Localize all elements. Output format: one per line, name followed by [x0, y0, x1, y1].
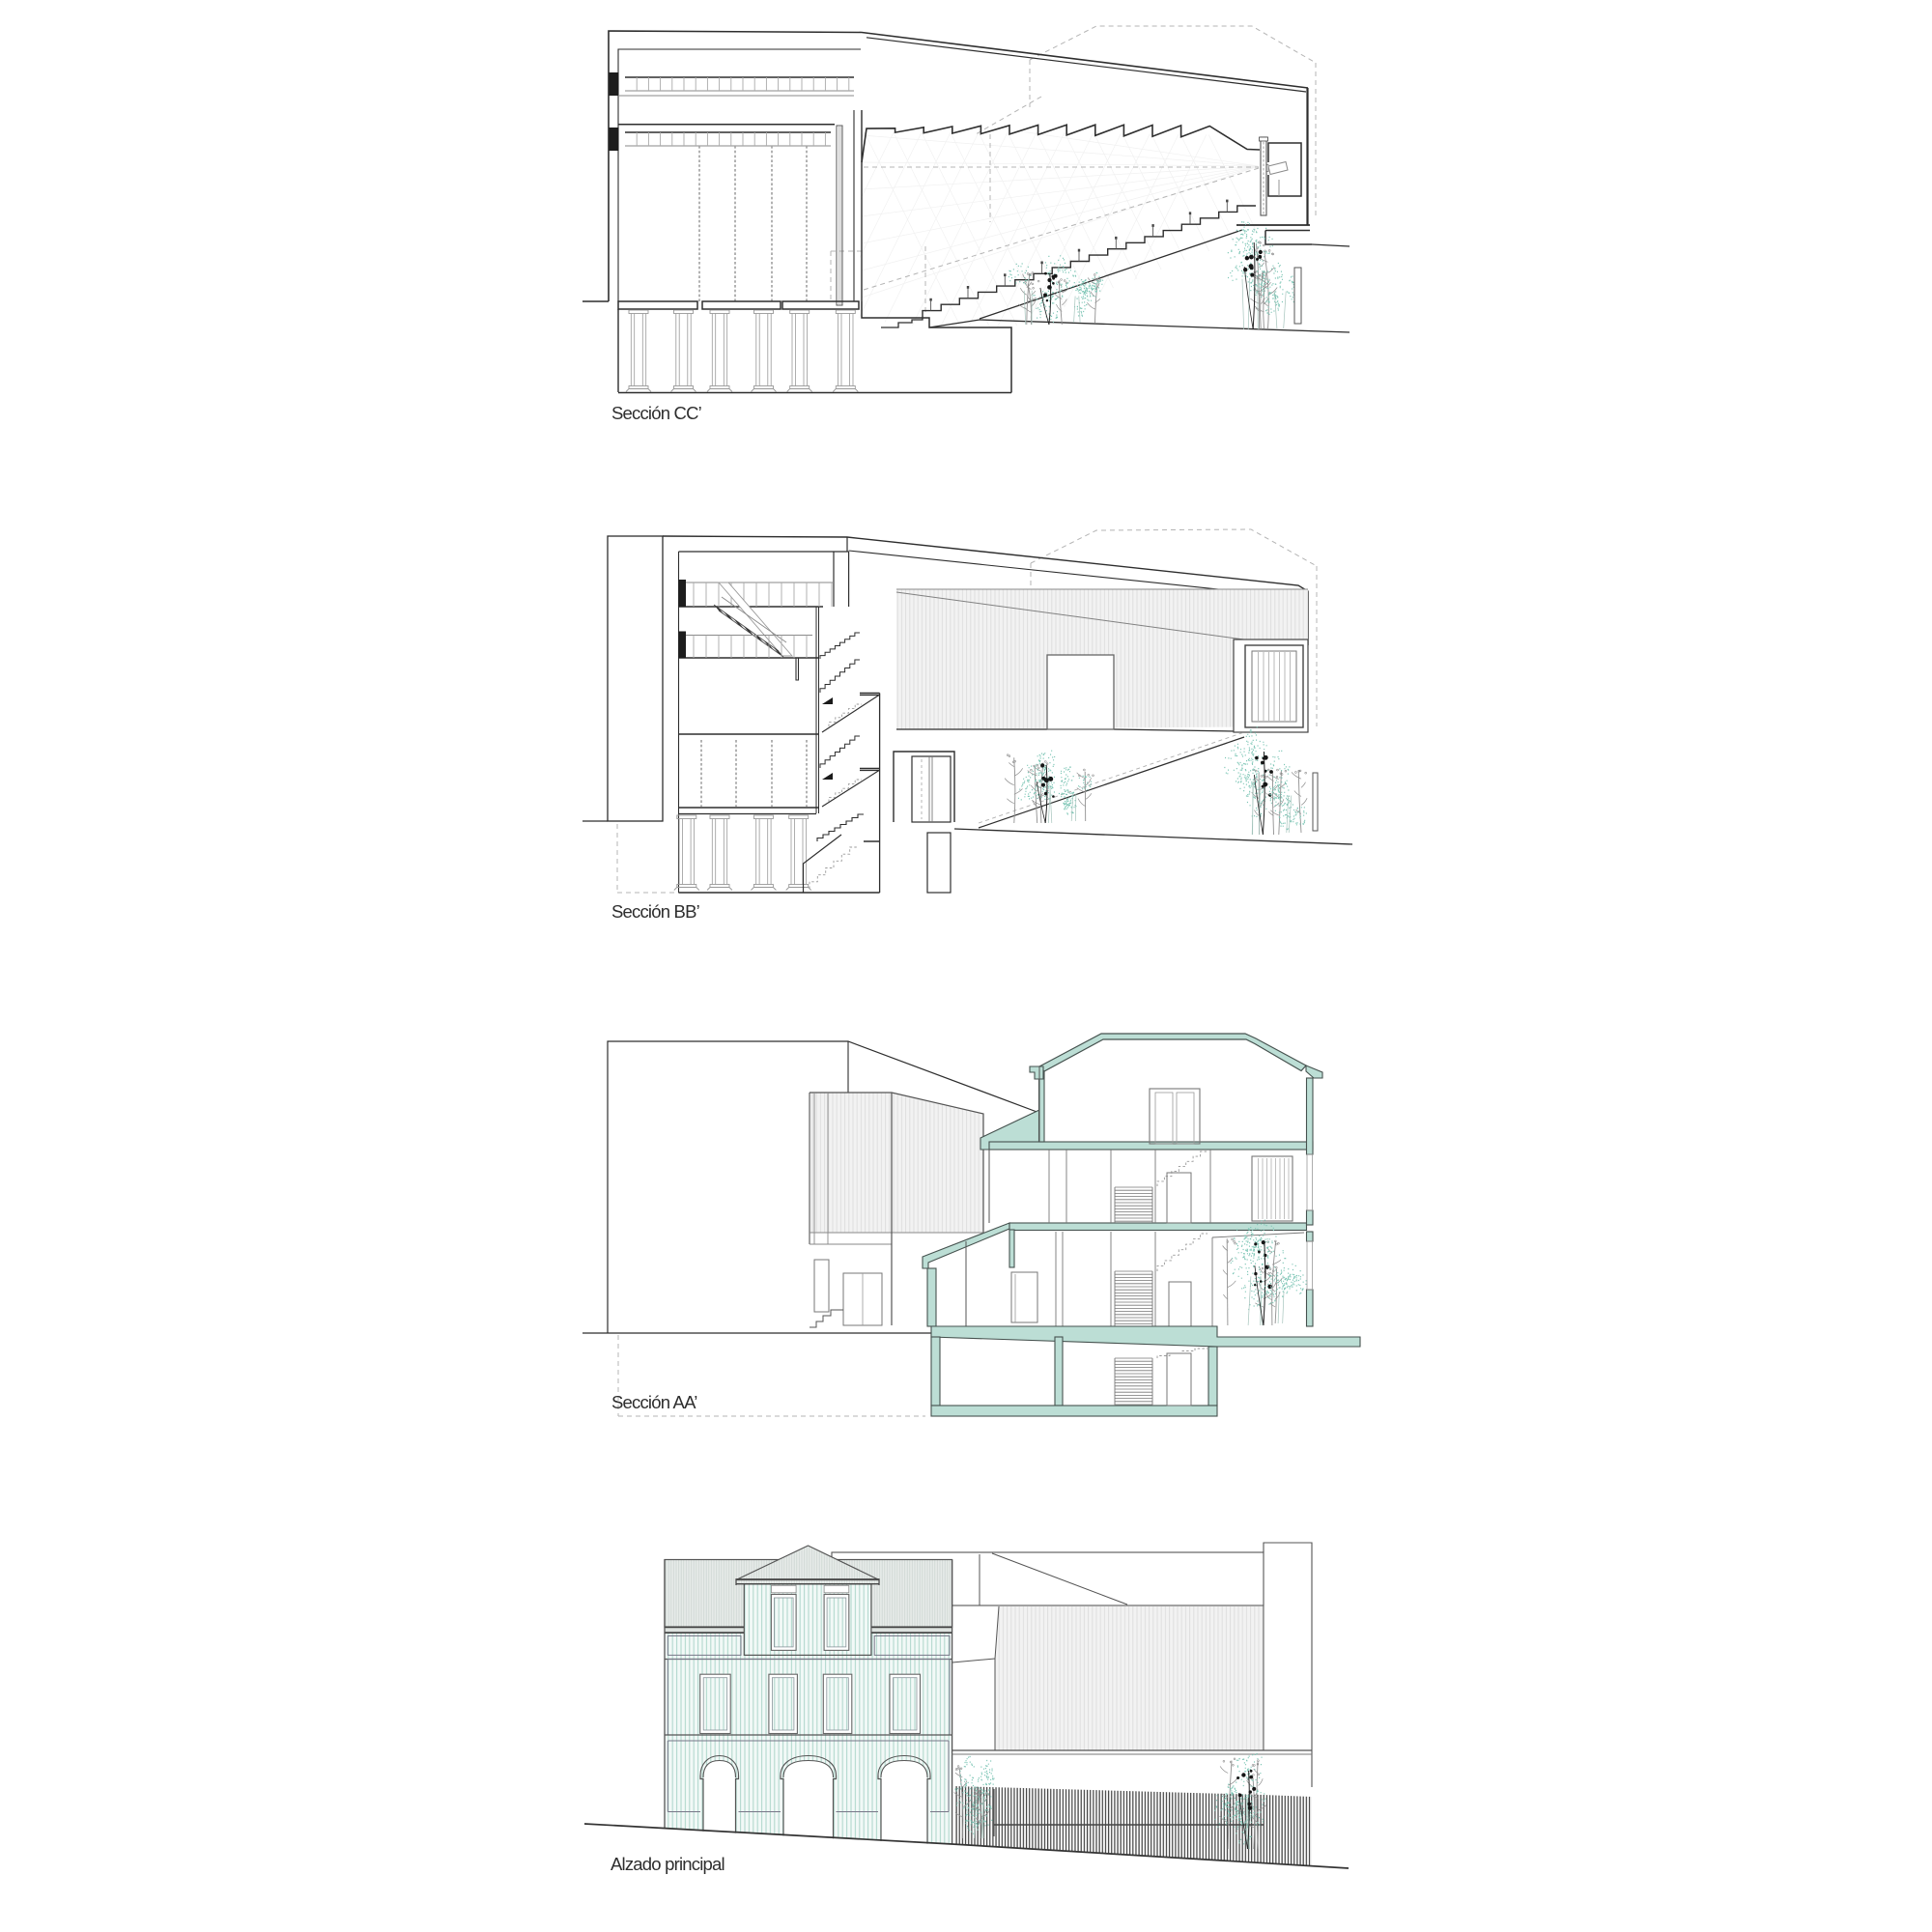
svg-text:Sección BB’: Sección BB’ [611, 901, 699, 922]
svg-text:Sección CC’: Sección CC’ [611, 403, 701, 423]
svg-text:Sección AA’: Sección AA’ [611, 1392, 697, 1412]
svg-text:Alzado principal: Alzado principal [611, 1854, 724, 1874]
